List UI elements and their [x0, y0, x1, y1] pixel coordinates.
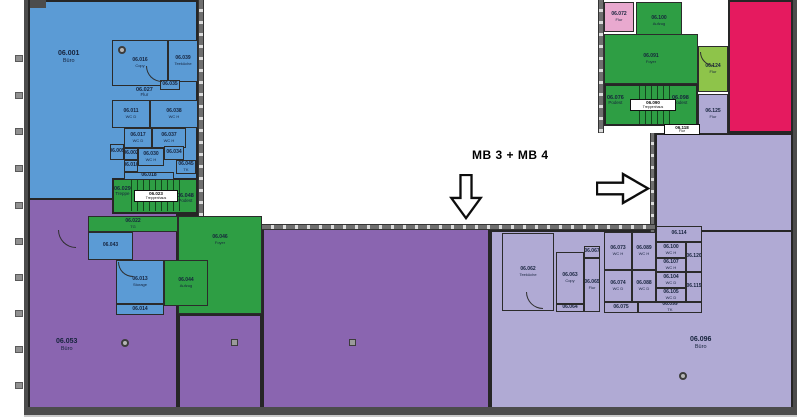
- structural-column: [349, 339, 356, 346]
- structural-column: [231, 339, 238, 346]
- region-open-office-purple-m: [178, 314, 262, 410]
- wall: [30, 0, 46, 8]
- room-06.075: 06.075: [604, 302, 638, 313]
- wall: [24, 415, 797, 417]
- window-tick: [15, 55, 23, 62]
- structural-column: [121, 339, 129, 347]
- window-tick: [15, 202, 23, 209]
- structural-column: [118, 46, 126, 54]
- wall: [24, 0, 28, 408]
- room-06.064: 06.064: [556, 304, 584, 312]
- down-arrow-icon: [448, 174, 484, 220]
- room-06.010: 06.010: [124, 160, 138, 172]
- wall: [262, 224, 655, 230]
- room-06.115: 06.115: [686, 272, 702, 302]
- wall: [793, 0, 797, 408]
- room-06.125: 06.125Flur: [698, 94, 728, 134]
- room-06.034: 06.034: [164, 146, 184, 160]
- room-06.104: 06.104WC D: [656, 272, 686, 288]
- room-06.114: 06.114: [656, 226, 702, 242]
- stair-label-box-06.023: 06.023Treppenhaus: [134, 190, 178, 202]
- room-06.014: 06.014: [116, 304, 164, 315]
- room-06.074: 06.074WC D: [604, 270, 632, 302]
- room-06.088: 06.088WC D: [632, 270, 656, 302]
- region-lavender-upper: [655, 133, 793, 232]
- room-06.107: 06.107WC H: [656, 258, 686, 272]
- region-magenta-unit: [728, 0, 793, 133]
- room-06.099: 06.099TK: [638, 302, 702, 313]
- window-tick: [15, 238, 23, 245]
- room-06.045: 06.045TK: [176, 160, 196, 174]
- room-06.037: 06.037WC H: [152, 128, 186, 148]
- right-arrow-icon: [596, 172, 650, 205]
- room-06.044: 06.044Aufzug: [164, 260, 208, 306]
- wall: [650, 133, 655, 232]
- stair-label-box-06.118: 06.118Flur: [664, 124, 700, 135]
- room-06.073: 06.073WC H: [604, 232, 632, 270]
- room-06.072: 06.072Flur: [604, 2, 634, 32]
- window-tick: [15, 128, 23, 135]
- wall: [24, 407, 797, 415]
- window-tick: [15, 274, 23, 281]
- room-06.105: 06.105WC D: [656, 288, 686, 302]
- window-tick: [15, 346, 23, 353]
- floor-plan: 06.001Büro06.016Copy06.039Teeküche06.035…: [0, 0, 800, 419]
- room-06.030: 06.030WC H: [138, 148, 164, 166]
- stair-label-box-06.090: 06.090Treppenhaus: [630, 99, 676, 111]
- room-06.089: 06.089WC H: [632, 232, 656, 270]
- room-06.038: 06.038WC H: [150, 100, 198, 128]
- room-06.002: 06.002: [124, 148, 138, 160]
- room-06.005: 06.005: [110, 144, 124, 160]
- room-06.035: 06.035: [160, 80, 180, 90]
- room-06.120: 06.120: [686, 242, 702, 272]
- wall: [198, 0, 204, 216]
- window-tick: [15, 92, 23, 99]
- annotation-mb3-mb4: MB 3 + MB 4: [472, 148, 549, 162]
- room-06.018: 06.018: [124, 172, 174, 180]
- room-06.022: 06.022TG: [88, 216, 178, 232]
- room-06.063: 06.063Copy: [556, 252, 584, 304]
- window-tick: [15, 382, 23, 389]
- room-06.067: 06.067: [584, 246, 600, 258]
- window-tick: [15, 165, 23, 172]
- room-06.043: 06.043: [88, 232, 133, 260]
- room-06.091: 06.091Foyer: [604, 34, 698, 84]
- region-open-office-purple-r: [262, 228, 490, 410]
- structural-column: [679, 372, 687, 380]
- window-tick: [15, 310, 23, 317]
- room-06.100: 06.100WC H: [656, 242, 686, 258]
- room-06.017: 06.017WC D: [124, 128, 152, 148]
- room-06.039: 06.039Teeküche: [168, 40, 198, 82]
- room-06.065: 06.065Flur: [584, 258, 600, 312]
- room-06.011: 06.011WC D: [112, 100, 150, 128]
